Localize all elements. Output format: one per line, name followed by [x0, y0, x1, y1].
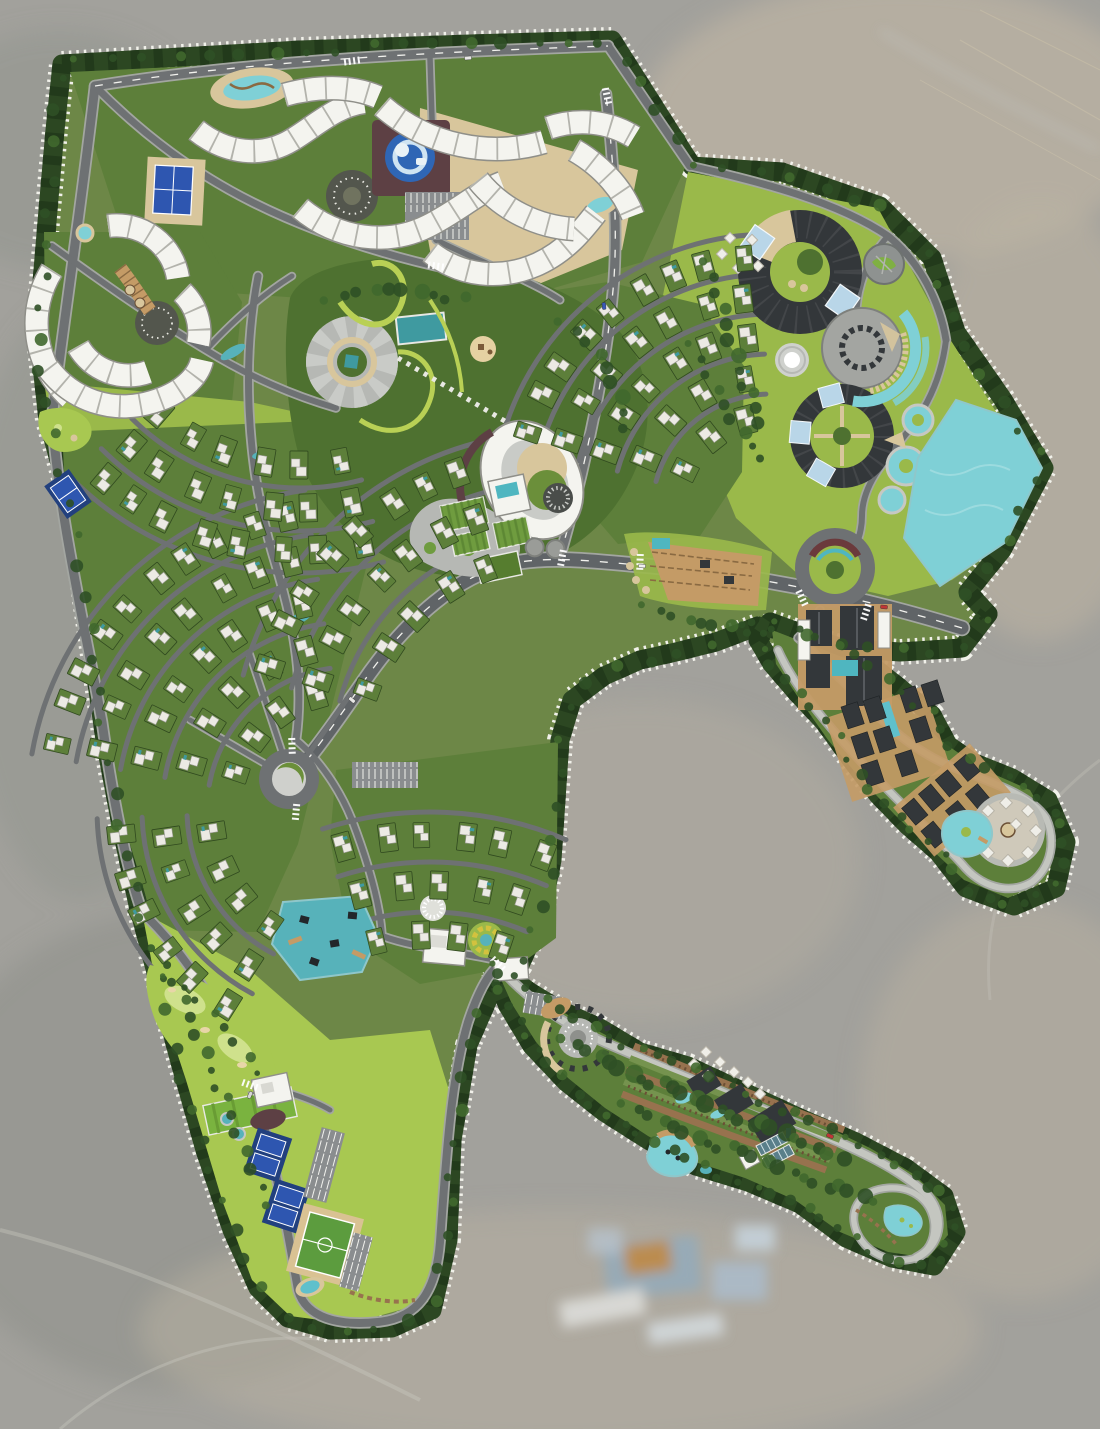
tree — [618, 424, 628, 434]
villa-roof-wing — [742, 296, 751, 305]
tree — [734, 1179, 741, 1186]
tree — [521, 984, 529, 992]
tree — [715, 385, 725, 395]
tree — [242, 1145, 254, 1157]
tree — [857, 769, 869, 781]
tree — [158, 1003, 171, 1016]
villa-roof-wing — [403, 884, 412, 893]
villa-lot — [299, 494, 318, 523]
tree — [171, 1043, 183, 1055]
tree — [591, 1021, 603, 1033]
tree — [736, 367, 744, 375]
tree — [415, 284, 431, 300]
tree — [603, 1112, 611, 1120]
tree — [191, 997, 198, 1004]
tree — [925, 838, 932, 845]
tree — [226, 1110, 236, 1120]
tree — [670, 1145, 681, 1156]
tree — [167, 978, 176, 987]
tree — [672, 132, 685, 145]
tree — [1020, 783, 1027, 790]
tree — [596, 348, 608, 360]
tree — [187, 1105, 197, 1115]
tree — [80, 591, 92, 603]
tree — [943, 851, 949, 857]
tree — [1005, 535, 1016, 546]
tree — [742, 1091, 749, 1098]
tree — [785, 172, 795, 182]
tree — [1053, 881, 1059, 887]
tree — [674, 1125, 688, 1139]
tree — [615, 389, 631, 405]
tree — [744, 1150, 757, 1163]
park-playground — [470, 336, 496, 362]
tree — [204, 50, 215, 61]
tree — [769, 1159, 785, 1175]
tree — [552, 802, 562, 812]
tree — [583, 1101, 592, 1110]
tree — [743, 629, 751, 637]
tree — [593, 39, 602, 48]
tree — [1013, 506, 1023, 516]
glamping-lagoon — [942, 811, 992, 857]
tree — [797, 688, 807, 698]
tree — [51, 428, 61, 438]
tree — [696, 618, 707, 629]
tree — [521, 1032, 528, 1039]
tree — [66, 499, 74, 507]
tree — [686, 615, 696, 625]
tree — [750, 402, 762, 414]
tree — [331, 49, 339, 57]
tree — [200, 1136, 209, 1145]
tree — [399, 38, 409, 48]
tree — [603, 375, 617, 389]
tree — [1051, 809, 1060, 818]
tree — [622, 57, 632, 67]
tree — [623, 1121, 630, 1128]
villa-lot — [732, 284, 753, 314]
tree — [494, 37, 507, 50]
tree — [933, 1185, 945, 1197]
tree — [998, 900, 1007, 909]
villa-roof-wing — [743, 256, 751, 264]
tree — [307, 1324, 316, 1333]
villa-roof — [493, 830, 505, 841]
sw-spa-pool — [77, 225, 93, 241]
tree — [803, 1115, 814, 1126]
tree — [998, 396, 1011, 409]
car — [602, 302, 606, 309]
tree — [456, 1104, 469, 1117]
tree — [878, 1151, 886, 1159]
tree — [762, 646, 768, 652]
tree — [909, 702, 916, 709]
villa-lot — [394, 871, 415, 901]
tree — [182, 995, 192, 1005]
tree — [708, 640, 717, 649]
tree — [667, 1056, 677, 1066]
tree — [932, 280, 941, 289]
tree — [760, 630, 767, 637]
tree — [940, 1240, 948, 1248]
tree — [720, 303, 732, 315]
tree — [40, 397, 51, 408]
tree — [455, 1071, 467, 1083]
villa-lot — [152, 826, 182, 848]
tree — [504, 1002, 513, 1011]
tree — [792, 1168, 800, 1176]
tree — [557, 1069, 568, 1080]
tree — [340, 291, 350, 301]
tree — [632, 1130, 638, 1136]
tree — [755, 1099, 763, 1107]
villa-roof-wing — [257, 455, 267, 464]
villa-roof — [234, 545, 246, 556]
villa-roof-wing — [438, 883, 447, 891]
tree — [907, 226, 914, 233]
tree — [443, 1231, 453, 1241]
tree — [925, 249, 933, 257]
tree — [188, 1029, 200, 1041]
tree — [1007, 773, 1013, 779]
tree — [558, 769, 567, 778]
tree — [960, 643, 968, 651]
tree — [1058, 857, 1070, 869]
tree — [685, 340, 692, 347]
villa-roof — [296, 467, 306, 476]
tree — [537, 900, 550, 913]
tree — [543, 994, 552, 1003]
tree — [48, 135, 60, 147]
tree — [704, 1139, 712, 1147]
tree — [838, 732, 845, 739]
tree — [718, 164, 726, 172]
tree — [951, 1223, 958, 1230]
tree — [899, 643, 909, 653]
tree — [565, 39, 573, 47]
tree — [679, 1153, 689, 1163]
tree — [762, 659, 774, 671]
tree — [228, 1128, 239, 1139]
tree — [1033, 476, 1042, 485]
tree — [32, 365, 44, 377]
tree — [44, 272, 52, 280]
tree — [638, 601, 645, 608]
tree — [219, 1197, 226, 1204]
villa-lot — [275, 536, 293, 562]
villa-roof-wing — [164, 828, 173, 838]
tree — [923, 1182, 934, 1193]
tree — [160, 973, 166, 979]
villa-roof-wing — [465, 835, 474, 844]
tree — [174, 1074, 185, 1085]
tree — [42, 240, 51, 249]
tree — [874, 199, 887, 212]
tree — [75, 531, 82, 538]
tree — [40, 208, 50, 218]
tree — [35, 333, 48, 346]
villa-lot — [447, 922, 468, 952]
tree — [822, 717, 830, 725]
tree — [579, 337, 590, 348]
tree — [730, 1082, 736, 1088]
tree — [554, 736, 562, 744]
tree — [690, 162, 697, 169]
tree — [372, 284, 384, 296]
villa-roof — [734, 287, 745, 297]
tree — [89, 623, 100, 634]
tree — [1032, 891, 1039, 898]
tree — [461, 292, 472, 303]
villa-roof-wing — [358, 890, 368, 900]
tree — [653, 1050, 662, 1059]
north-amphitheater-garden — [326, 170, 378, 222]
tree — [430, 291, 438, 299]
master-plan-stage — [0, 0, 1100, 1429]
tree — [672, 1085, 687, 1100]
villa-roof-wing — [231, 536, 241, 546]
tree — [843, 757, 849, 763]
tree — [163, 961, 171, 969]
tree — [898, 812, 907, 821]
tree — [827, 1123, 839, 1135]
tree — [890, 1160, 899, 1169]
tree — [556, 1034, 566, 1044]
villa-roof-wing — [375, 938, 384, 947]
tree — [370, 1326, 377, 1333]
tree — [536, 1047, 542, 1053]
nw-padel-court — [144, 157, 205, 226]
tree — [640, 1044, 648, 1052]
tree — [303, 49, 310, 56]
tree — [224, 1093, 233, 1102]
tree — [70, 559, 83, 572]
tree — [657, 607, 665, 615]
stone-garden-circle — [864, 244, 904, 284]
tree — [211, 1084, 219, 1092]
tree — [869, 1198, 877, 1206]
tree — [600, 361, 613, 374]
tree — [137, 53, 146, 62]
tree — [790, 1107, 800, 1117]
tree — [393, 283, 407, 297]
tree — [946, 863, 958, 875]
ring2-skylight — [789, 421, 811, 445]
tree — [489, 961, 495, 967]
fountain-plaza — [775, 343, 809, 377]
tree — [981, 562, 993, 574]
tree — [771, 618, 777, 624]
tree — [854, 1233, 861, 1240]
tree — [839, 1184, 853, 1198]
tree — [916, 1260, 926, 1270]
tree — [1021, 899, 1029, 907]
sw-roundabout — [259, 749, 319, 809]
tree — [898, 689, 904, 695]
tree — [778, 1107, 787, 1116]
tree — [431, 1295, 443, 1307]
tree — [747, 618, 755, 626]
tree — [520, 957, 528, 965]
tree — [220, 1023, 229, 1032]
tree — [635, 76, 646, 87]
tree — [642, 1110, 653, 1121]
tree — [606, 1033, 612, 1039]
tree — [965, 753, 976, 764]
tree — [712, 1174, 720, 1182]
master-plan-drawing — [0, 0, 1100, 1429]
tree — [256, 1281, 267, 1292]
tree — [740, 426, 753, 439]
tree — [703, 1071, 715, 1083]
tree — [254, 1070, 260, 1076]
tree — [925, 649, 934, 658]
tree — [822, 184, 833, 195]
tree — [432, 1263, 443, 1274]
tree — [34, 304, 41, 311]
tree — [666, 612, 675, 621]
tree — [806, 1203, 816, 1213]
tree — [756, 455, 764, 463]
tree — [862, 784, 873, 795]
villa-lot — [430, 871, 449, 900]
tree — [936, 725, 945, 734]
tree — [731, 1114, 744, 1127]
tree — [94, 719, 102, 727]
tree — [370, 39, 379, 48]
tree — [122, 850, 133, 861]
tree — [804, 702, 813, 711]
villa-roof — [379, 826, 390, 836]
tree — [260, 1184, 267, 1191]
tree — [751, 416, 764, 429]
car — [880, 605, 887, 609]
tree — [894, 1257, 905, 1268]
tree — [284, 1313, 294, 1323]
tree — [554, 317, 562, 325]
villa-roof-wing — [333, 456, 342, 465]
arm-hotel-pool — [832, 660, 858, 676]
tree — [526, 926, 533, 933]
tree — [698, 355, 706, 363]
tree — [350, 287, 361, 298]
tree — [691, 1062, 702, 1073]
tree — [985, 617, 992, 624]
tree — [731, 348, 747, 364]
tree — [819, 1147, 833, 1161]
villa-pool — [470, 828, 475, 831]
tree — [963, 887, 974, 898]
tree — [814, 1213, 823, 1222]
tree — [493, 985, 503, 995]
tree — [648, 104, 660, 116]
car — [464, 56, 471, 60]
tree — [575, 1090, 585, 1100]
villa-roof-wing — [387, 835, 396, 844]
tree — [709, 288, 720, 299]
villa-lot — [263, 492, 284, 522]
villa-lot — [196, 821, 226, 843]
villa-roof-wing — [100, 742, 110, 752]
villa-roof-wing — [744, 376, 753, 384]
amphitheater-roundabout — [795, 528, 875, 608]
tree — [1037, 447, 1045, 455]
villa-roof — [396, 875, 407, 885]
tree — [711, 1144, 721, 1154]
tree — [986, 893, 996, 903]
tree — [1014, 428, 1021, 435]
tree — [757, 167, 766, 176]
villa-roof-wing — [482, 888, 491, 897]
tree — [545, 835, 556, 846]
tree — [780, 674, 791, 685]
tree — [949, 312, 959, 322]
tree — [849, 649, 859, 659]
tree — [959, 588, 972, 601]
park-plaza-circle — [306, 316, 398, 408]
tree — [617, 1043, 624, 1050]
villa-roof-wing — [55, 737, 64, 746]
tree — [204, 1166, 212, 1174]
car — [638, 564, 645, 568]
villa-roof-wing — [266, 500, 275, 509]
tree — [104, 759, 111, 766]
tree — [244, 1163, 257, 1176]
tree — [211, 1009, 219, 1017]
arm-hotel-complex — [798, 604, 892, 710]
tree — [864, 1249, 870, 1255]
tree — [942, 741, 952, 751]
villa-roof-wing — [277, 544, 285, 552]
tree — [427, 38, 438, 49]
villa-roof — [739, 327, 750, 337]
tree — [87, 655, 97, 665]
tree — [617, 1099, 625, 1107]
tree — [719, 399, 730, 410]
villa-roof-wing — [456, 935, 465, 944]
tree — [230, 1224, 243, 1237]
tree — [148, 945, 155, 952]
tree — [440, 295, 450, 305]
hotel-building-1 — [284, 88, 378, 97]
event-hall-circle — [822, 308, 902, 388]
tree — [834, 1224, 842, 1232]
villa-roof — [478, 879, 488, 889]
tree — [96, 687, 105, 696]
villa-roof-wing — [291, 459, 300, 467]
villa-roof-wing — [498, 840, 508, 850]
tree — [53, 468, 62, 477]
tree — [842, 1134, 848, 1140]
tree — [738, 621, 745, 628]
tree — [749, 443, 756, 450]
villa-pool — [744, 288, 749, 292]
tree — [465, 1039, 476, 1050]
tree — [848, 195, 860, 207]
tree — [796, 1138, 807, 1149]
tree — [619, 408, 627, 416]
villa-roof-wing — [301, 502, 310, 510]
tree — [579, 1044, 592, 1057]
tree — [723, 413, 735, 425]
tree — [262, 1201, 270, 1209]
tree — [884, 673, 896, 685]
villa-roof — [413, 924, 423, 933]
villa-roof-wing — [310, 543, 319, 551]
tree — [701, 1160, 710, 1169]
villa-roof — [156, 835, 166, 846]
